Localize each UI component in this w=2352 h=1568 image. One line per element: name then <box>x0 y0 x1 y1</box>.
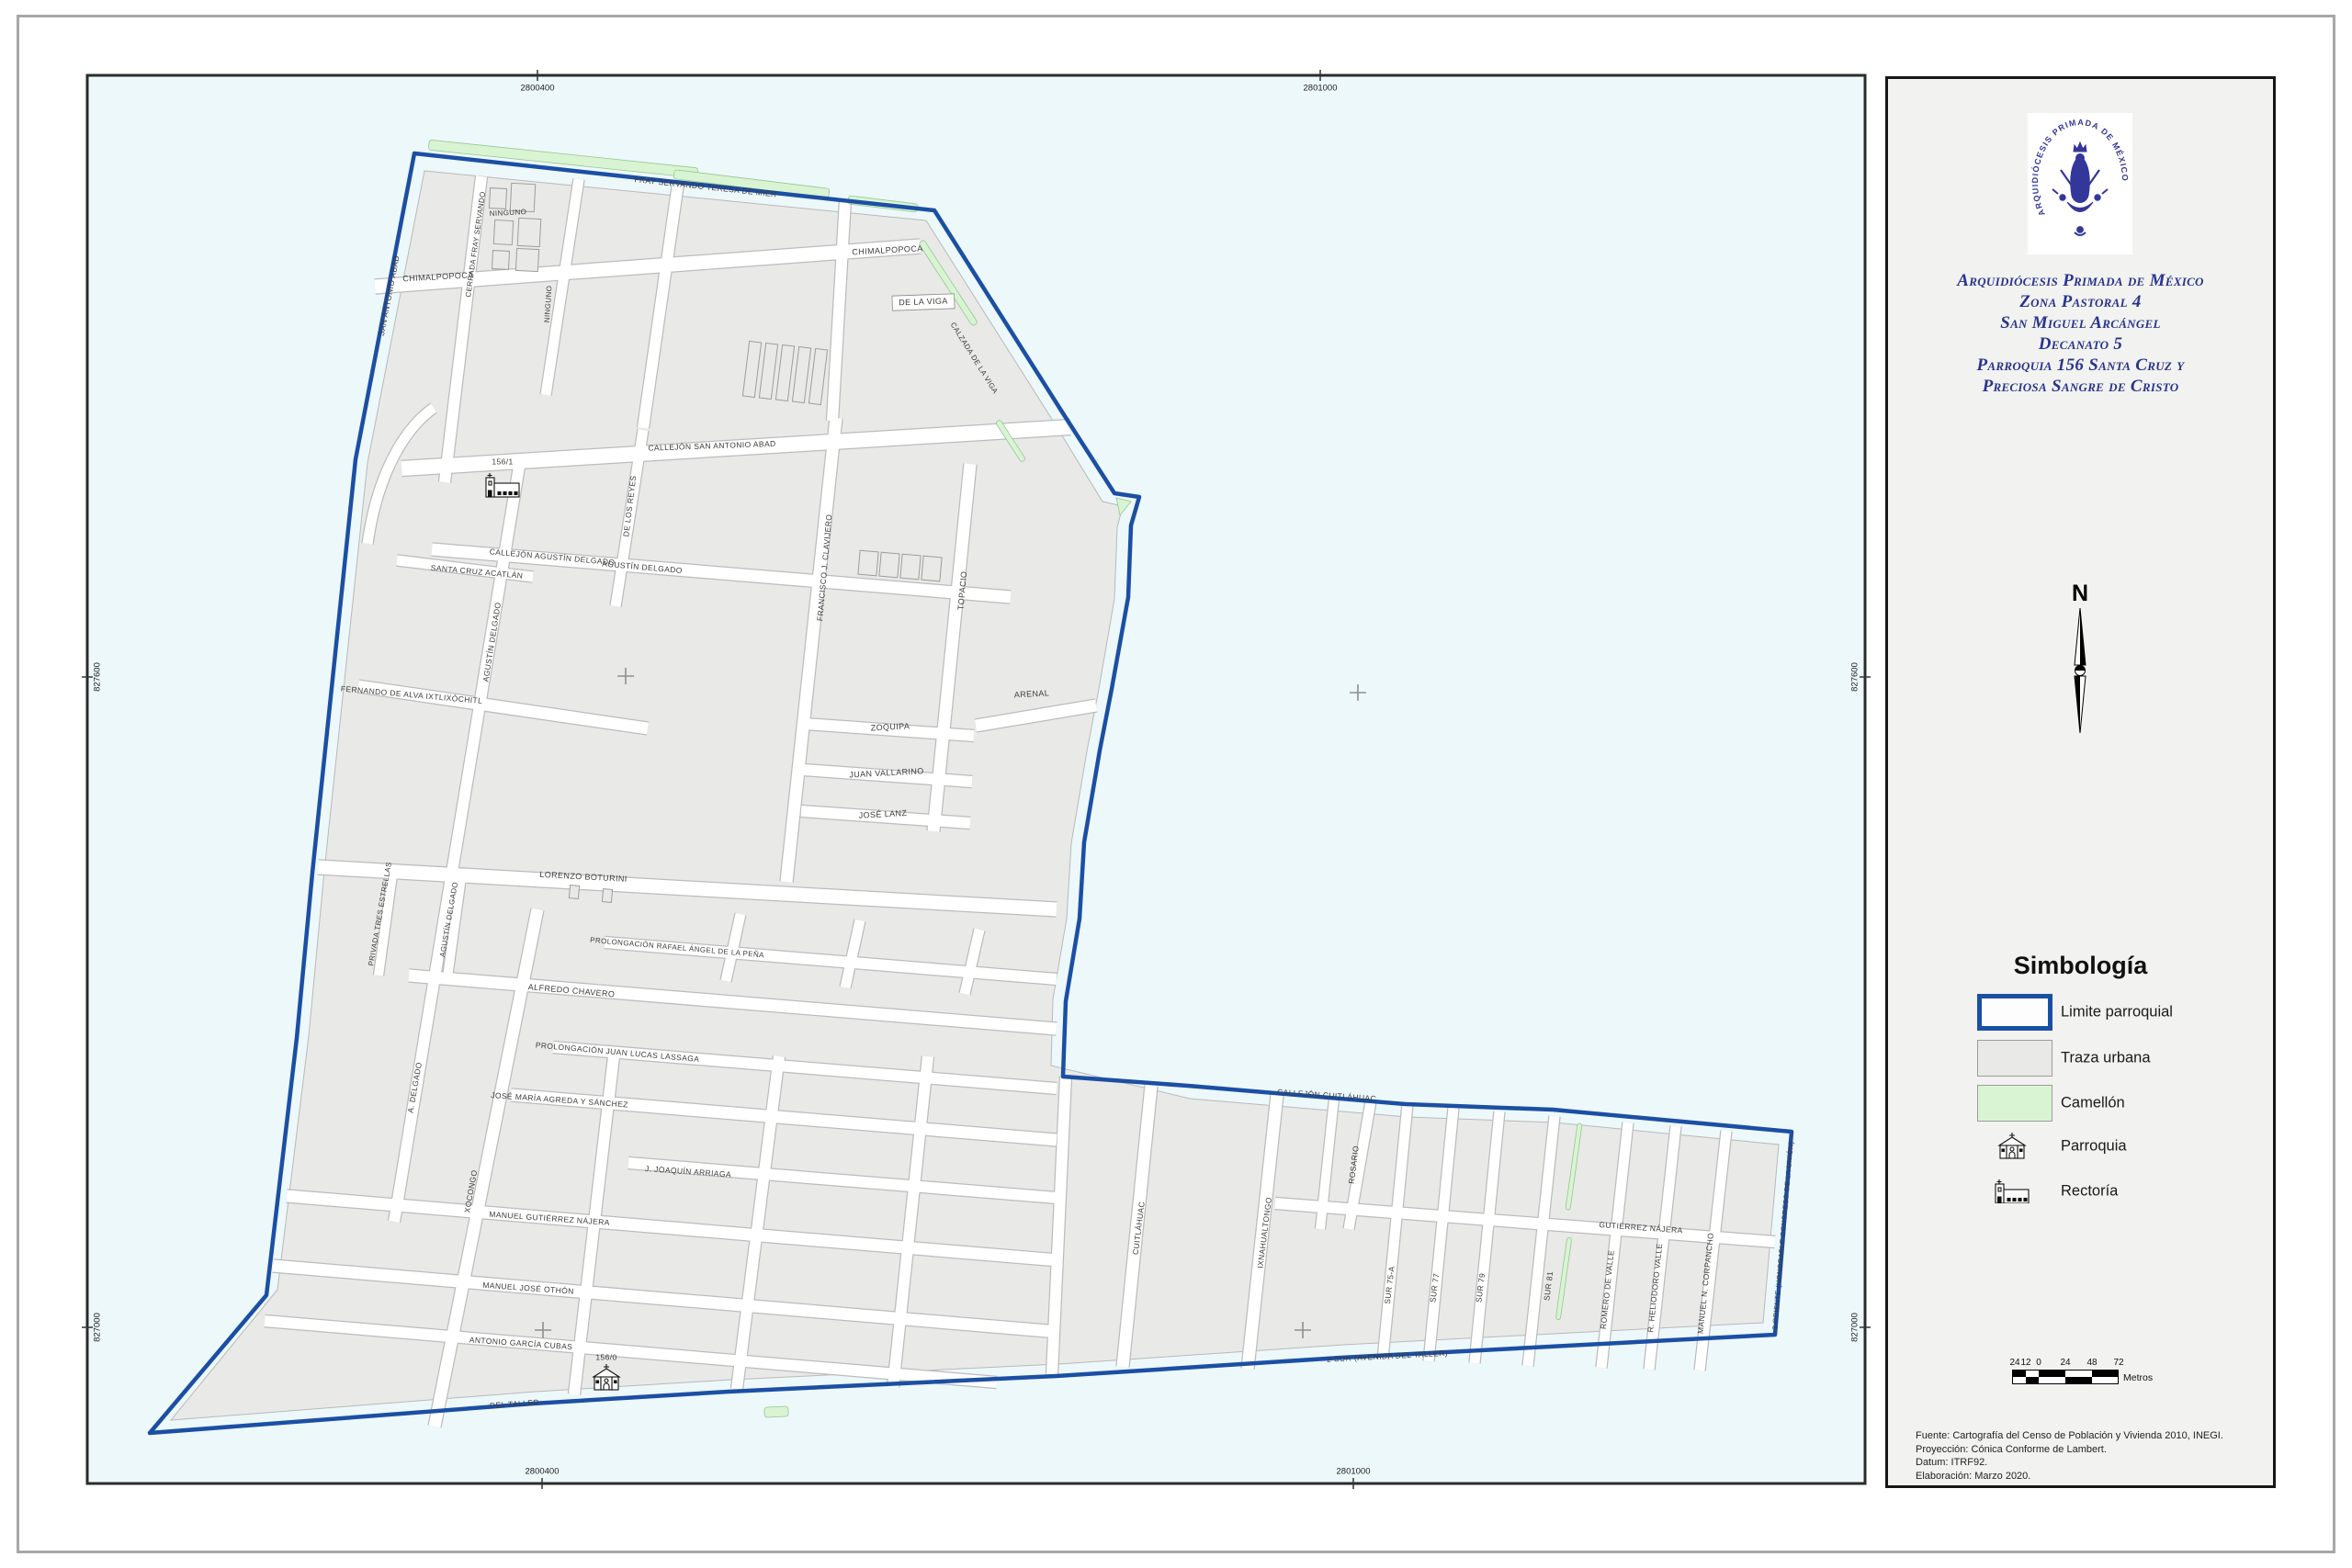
scale-tick: 72 <box>2113 1358 2123 1368</box>
title-line: Decanato 5 <box>1885 333 2276 355</box>
grid-coordinate: 2800400 <box>526 1467 560 1477</box>
street-label: ARENAL <box>1014 688 1050 699</box>
scale-unit: Metros <box>2123 1372 2153 1383</box>
scale-tick: 12 <box>2020 1358 2030 1368</box>
scale-tick: 0 <box>2036 1358 2041 1368</box>
credit-line-elaboracion: Elaboración: Marzo 2020. <box>1916 1470 2223 1483</box>
grid-coordinate: 2801000 <box>1337 1467 1371 1477</box>
credit-line-fuente: Fuente: Cartografía del Censo de Poblaci… <box>1916 1429 2223 1443</box>
legend-title: Simbología <box>1885 952 2276 980</box>
grid-coordinate: 827600 <box>93 662 103 692</box>
title-line: Preciosa Sangre de Cristo <box>1885 376 2276 397</box>
scale-tick: 24 <box>2009 1358 2019 1368</box>
credit-line-proyeccion: Proyección: Cónica Conforme de Lambert. <box>1916 1443 2223 1457</box>
street-label: 156/0 <box>595 1352 616 1361</box>
grid-coordinate: 2800400 <box>521 84 555 94</box>
legend-item-parroquia: Parroquia <box>2061 1138 2127 1156</box>
grid-coordinate: 827000 <box>1850 1313 1860 1342</box>
legend-swatch-traza-urbana <box>1977 1040 2052 1077</box>
title-line: Arquidiócesis Primada de México <box>1885 270 2276 291</box>
grid-coordinate: 827600 <box>1850 662 1860 692</box>
legend-item-camellon: Camellón <box>2061 1095 2125 1112</box>
north-arrow-icon: N <box>2062 579 2098 735</box>
street-label: 156/1 <box>492 457 513 466</box>
legend-item-traza-urbana: Traza urbana <box>2061 1050 2151 1067</box>
title-line: Parroquia 156 Santa Cruz y <box>1885 355 2276 376</box>
street-label: DE LA VIGA <box>899 296 948 307</box>
diocese-seal-logo: ARQUIDIÓCESIS PRIMADA DE MÉXICO <box>2028 113 2132 254</box>
legend-parroquia-icon <box>1996 1132 2028 1164</box>
map-title-block: Arquidiócesis Primada de México Zona Pas… <box>1885 270 2276 397</box>
scale-tick: 48 <box>2086 1358 2097 1368</box>
grid-coordinate: 827000 <box>93 1313 103 1342</box>
grid-coordinate: 2801000 <box>1304 84 1338 94</box>
legend-swatch-limite-parroquial <box>1977 994 2052 1031</box>
title-line: San Miguel Arcángel <box>1885 312 2276 333</box>
page: FRAY SERVANDO TERESA DE MIERCHIMALPOPOCA… <box>0 0 2352 1568</box>
scale-tick: 24 <box>2060 1358 2070 1368</box>
north-label: N <box>2072 581 2088 606</box>
scale-bar-graphic <box>2012 1370 2119 1384</box>
legend-item-limite-parroquial: Limite parroquial <box>2061 1004 2173 1021</box>
legend-item-rectoria: Rectoría <box>2061 1183 2118 1201</box>
legend-rectoria-icon <box>1994 1179 2030 1208</box>
legend-swatch-camellon <box>1977 1085 2052 1122</box>
credit-line-datum: Datum: ITRF92. <box>1916 1456 2223 1470</box>
scale-bar: 24 12 0 24 48 72 Metros <box>1982 1358 2239 1404</box>
seal-virgin-motif <box>2052 142 2108 235</box>
title-line: Zona Pastoral 4 <box>1885 291 2276 312</box>
map-credits: Fuente: Cartografía del Censo de Poblaci… <box>1916 1429 2223 1483</box>
